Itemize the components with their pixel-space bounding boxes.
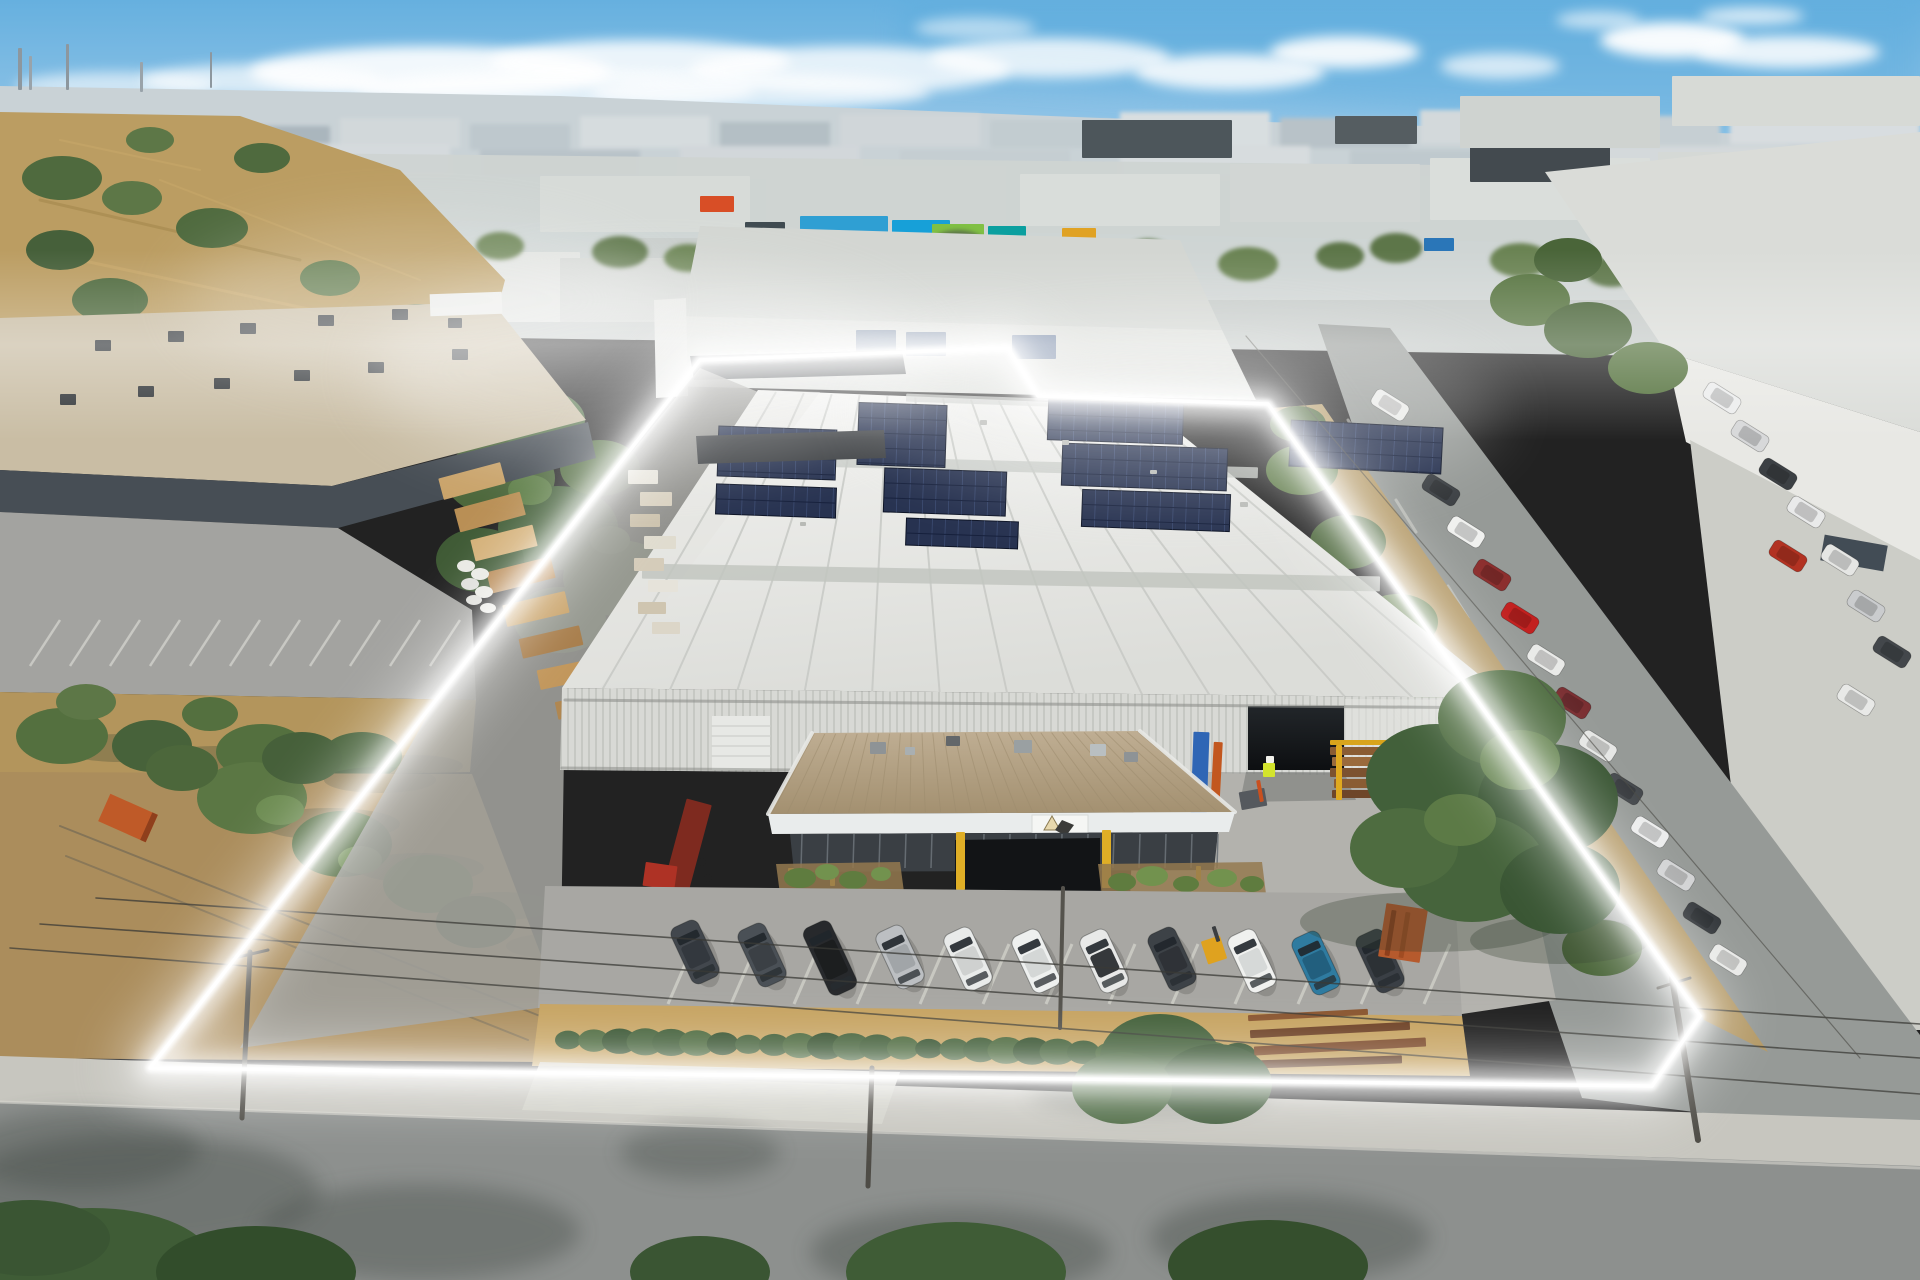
mist-far-left — [180, 220, 660, 380]
left-parking-lot — [0, 512, 476, 700]
office-fascia — [768, 812, 1235, 834]
office-carport-opening — [955, 838, 1100, 894]
aerial-property-photo — [0, 0, 1920, 1280]
aerial-photo-canvas — [0, 0, 1920, 1280]
closed-roller-door — [712, 716, 770, 770]
open-roller-door — [1248, 706, 1344, 770]
